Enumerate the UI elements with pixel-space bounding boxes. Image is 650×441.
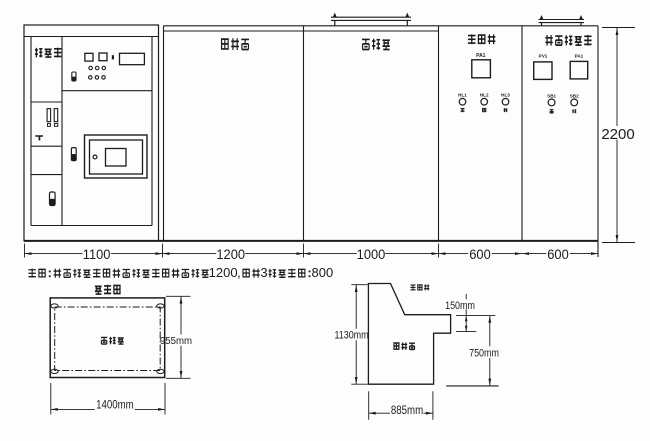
svg-text:HL1: HL1 (458, 93, 467, 98)
svg-text:1400mm: 1400mm (96, 399, 134, 412)
svg-text:955mm: 955mm (160, 335, 192, 346)
svg-text:885mm: 885mm (391, 404, 423, 417)
svg-text:600: 600 (469, 247, 490, 263)
svg-text:1100: 1100 (83, 247, 111, 263)
svg-text:HL2: HL2 (480, 93, 489, 98)
svg-text:1200: 1200 (216, 247, 245, 263)
svg-text:HL3: HL3 (501, 93, 510, 98)
svg-text:,: , (237, 265, 241, 280)
svg-text:3: 3 (260, 265, 267, 280)
svg-text:1000: 1000 (357, 247, 386, 263)
svg-text:750mm: 750mm (469, 348, 499, 360)
svg-text:SB1: SB1 (547, 94, 556, 99)
svg-text:800: 800 (312, 265, 334, 280)
svg-text:SB2: SB2 (570, 94, 579, 99)
svg-text:2200: 2200 (601, 126, 634, 143)
svg-text:PV1: PV1 (539, 53, 548, 58)
svg-text:1130mm: 1130mm (334, 330, 368, 342)
svg-text:PA1: PA1 (476, 53, 486, 59)
svg-text:150mm: 150mm (445, 300, 475, 312)
svg-text:600: 600 (547, 247, 568, 263)
svg-text:1200: 1200 (209, 265, 238, 280)
svg-text:PA1: PA1 (575, 53, 584, 58)
